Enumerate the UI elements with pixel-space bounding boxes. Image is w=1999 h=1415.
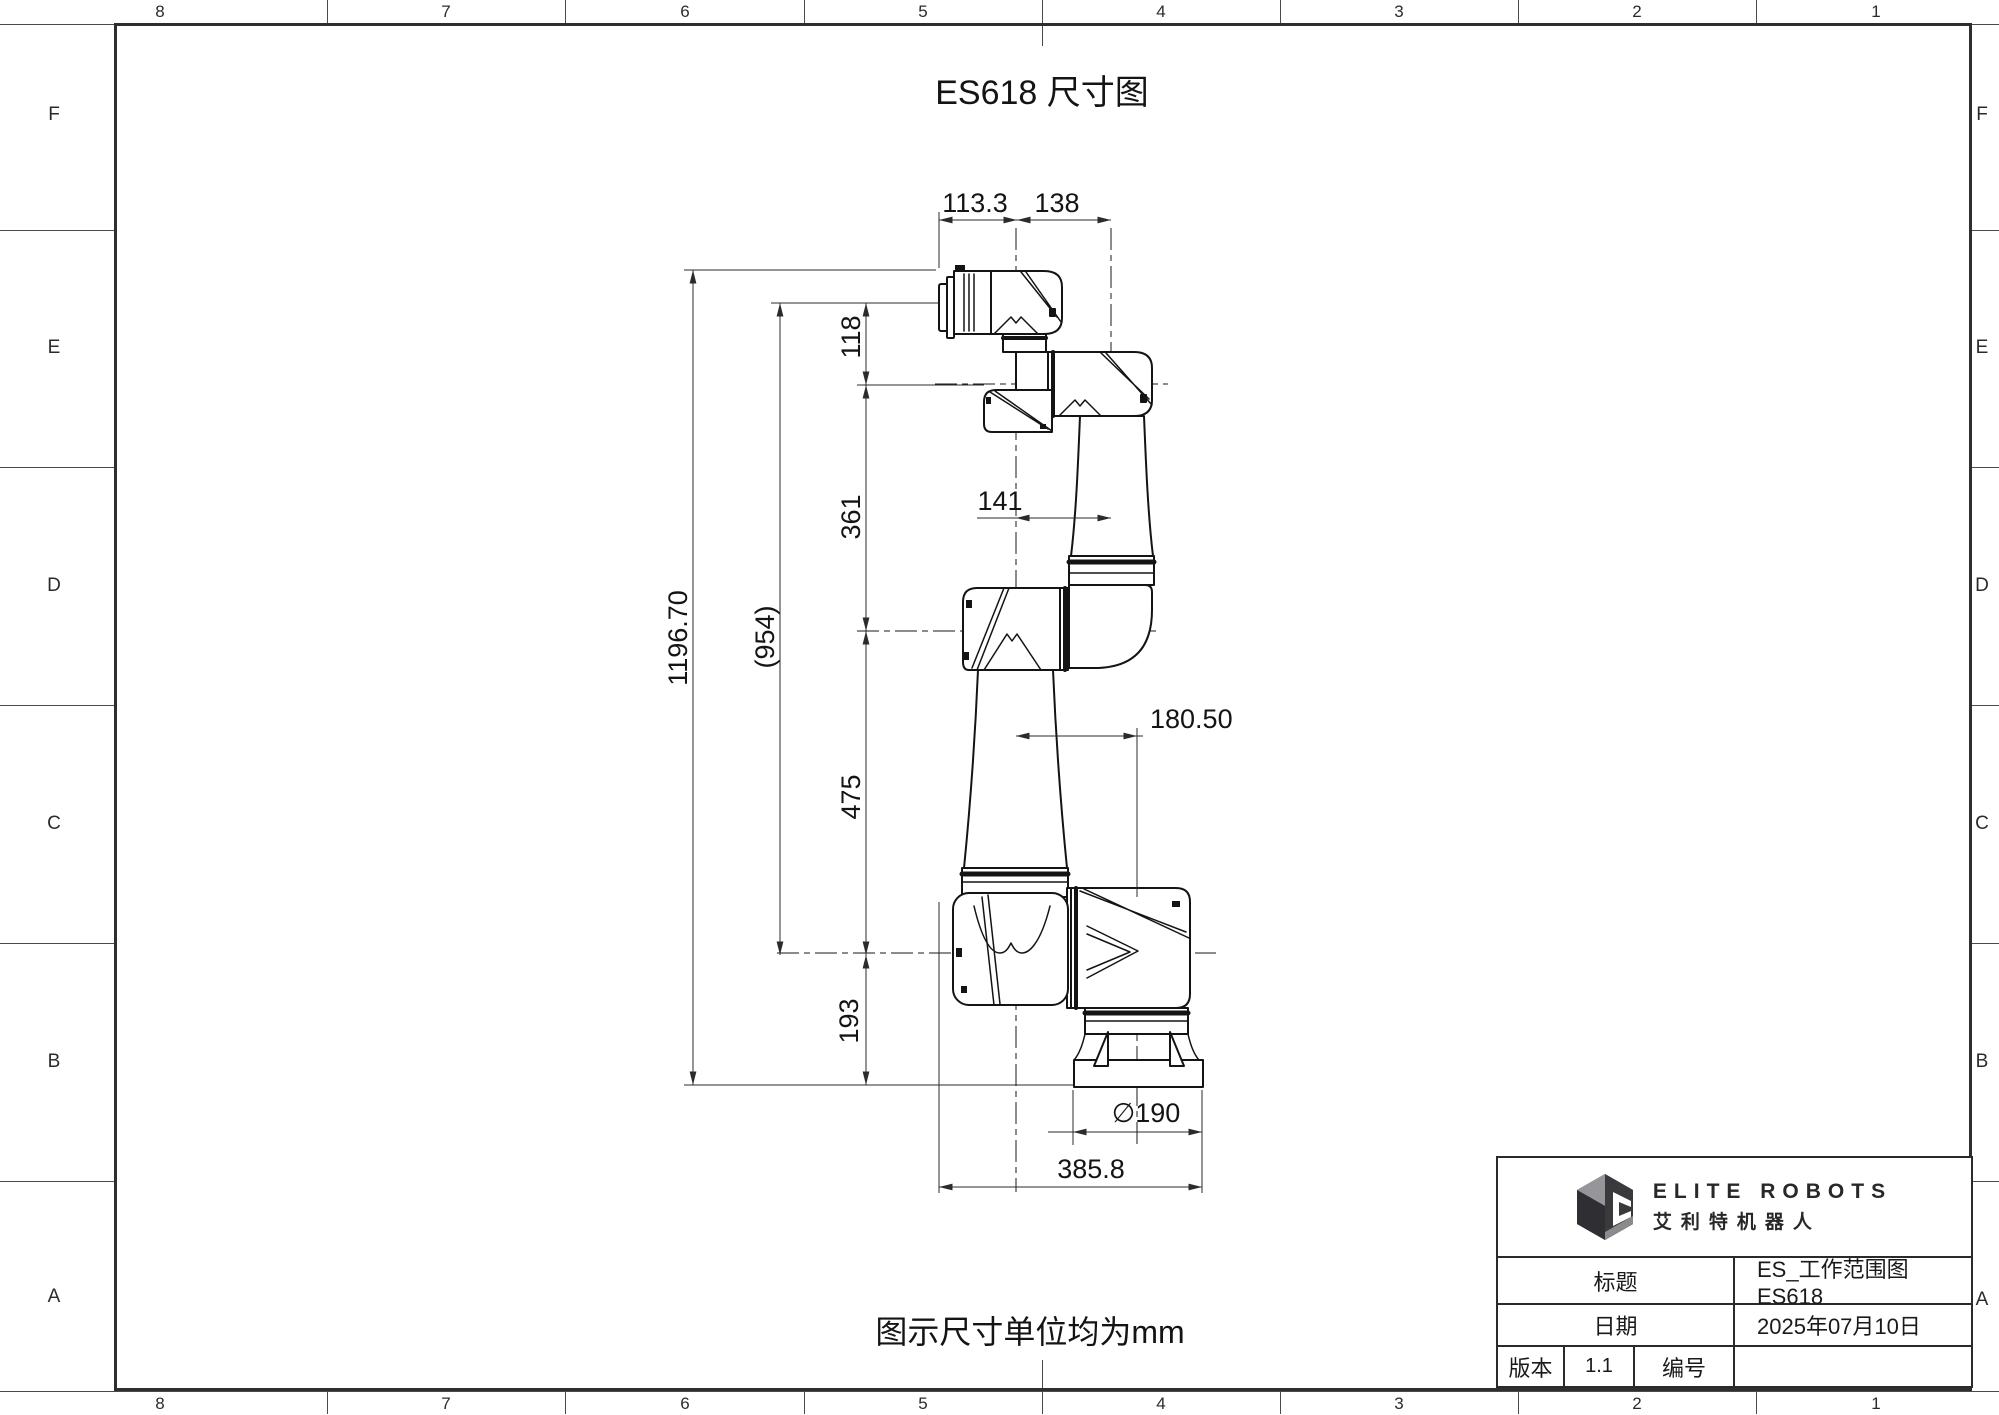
upper-arm-link: [962, 670, 1068, 897]
version-value: 1.1: [1565, 1347, 1635, 1386]
dim-385-8: 385.8: [1057, 1154, 1125, 1184]
dim-193: 193: [834, 998, 864, 1043]
number-label: 编号: [1635, 1347, 1735, 1386]
dim-138: 138: [1034, 188, 1079, 218]
unit-note: 图示尺寸单位均为mm: [875, 1314, 1184, 1350]
tool-flange: [939, 265, 991, 338]
drawing-sheet: { "sheet": { "title": "ES618 尺寸图", "note…: [0, 0, 1999, 1414]
version-label: 版本: [1498, 1347, 1565, 1386]
base-pedestal: [1074, 1008, 1203, 1087]
dim-113-3: 113.3: [942, 188, 1008, 218]
elbow-joint: [963, 585, 1152, 670]
dim-118: 118: [836, 315, 866, 358]
number-value: [1735, 1347, 1971, 1386]
title-label: 标题: [1498, 1258, 1735, 1303]
brand-name-cn: 艾利特机器人: [1653, 1207, 1892, 1234]
forearm-link: [1069, 416, 1154, 585]
base-joint: [1067, 888, 1190, 1008]
wrist-neck: [1003, 334, 1046, 352]
dim-361: 361: [836, 494, 866, 539]
wrist-joint-upper: [991, 271, 1062, 334]
dim-141: 141: [977, 486, 1022, 516]
dim-475: 475: [836, 774, 866, 819]
title-block-date-row: 日期 2025年07月10日: [1498, 1303, 1971, 1345]
brand-text: ELITE ROBOTS 艾利特机器人: [1653, 1180, 1892, 1234]
shoulder-joint: [953, 893, 1068, 1005]
title-block-title-row: 标题 ES_工作范围图 ES618: [1498, 1256, 1971, 1303]
dim-954: (954): [750, 605, 780, 668]
date-value: 2025年07月10日: [1735, 1305, 1971, 1345]
robot-arm-side-view: [939, 265, 1203, 1087]
title-block-revision-row: 版本 1.1 编号: [1498, 1345, 1971, 1386]
elite-robots-logo-icon: [1577, 1174, 1633, 1240]
dim-180-50: 180.50: [1150, 704, 1233, 734]
brand-name-en: ELITE ROBOTS: [1653, 1180, 1892, 1204]
dim-1196-70: 1196.70: [663, 590, 693, 686]
date-label: 日期: [1498, 1305, 1735, 1345]
title-block-logo-row: ELITE ROBOTS 艾利特机器人: [1498, 1158, 1971, 1256]
title-block: ELITE ROBOTS 艾利特机器人 标题 ES_工作范围图 ES618 日期…: [1496, 1156, 1973, 1388]
sheet-title: ES618 尺寸图: [935, 74, 1149, 112]
dim-dia-190: ∅190: [1112, 1098, 1181, 1128]
title-value: ES_工作范围图 ES618: [1735, 1258, 1971, 1303]
